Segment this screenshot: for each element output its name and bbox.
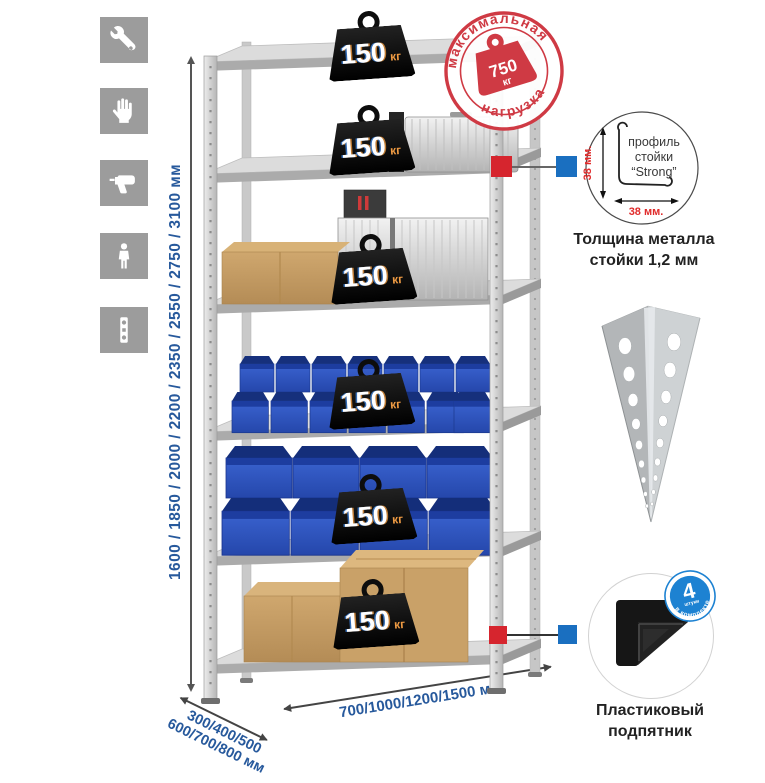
- foot-caption: Пластиковый подпятник: [568, 701, 732, 743]
- drill-tile: [100, 160, 148, 206]
- profile-dim-vertical: 38 мм.: [582, 146, 594, 181]
- post-profile-detail: 38 мм. 38 мм. профиль стойки “Strong”: [576, 100, 711, 235]
- connector-line-bottom: [504, 634, 560, 636]
- marker-red-bottom: [489, 626, 507, 644]
- profile-caption: Толщина металла стойки 1,2 мм: [558, 230, 730, 272]
- angle-post-image: [592, 298, 710, 530]
- level-tile: [100, 307, 148, 353]
- shelf-load-weight-4: 150кг: [325, 350, 416, 430]
- marker-blue-bottom: [558, 625, 577, 644]
- shelf-load-weight-2: 150кг: [325, 96, 416, 176]
- max-load-stamp: максимальная нагрузка 750 кг: [441, 8, 567, 134]
- gloves-icon: [109, 96, 139, 126]
- shelf-load-weight-5: 150кг: [327, 465, 418, 545]
- gloves-tile: [100, 88, 148, 134]
- profile-label-2: стойки: [635, 150, 673, 164]
- person-icon: [109, 241, 139, 271]
- profile-dim-horizontal: 38 мм.: [629, 206, 664, 218]
- drill-icon: [109, 168, 139, 198]
- shelf-load-weight-6: 150кг: [329, 570, 420, 650]
- assembly-tools-tile: [100, 17, 148, 63]
- spirit-level-icon: [109, 315, 139, 345]
- profile-label-3: “Strong”: [631, 165, 676, 179]
- connector-line-top: [508, 166, 558, 168]
- included-count-badge: 4 штуки в комплекте: [663, 569, 717, 623]
- person-tile: [100, 233, 148, 279]
- profile-label-1: профиль: [628, 135, 680, 149]
- height-dimension-label: 1600 / 1850 / 2000 / 2200 / 2350 / 2550 …: [167, 72, 187, 672]
- marker-blue-top: [556, 156, 577, 177]
- shelf-load-weight-3: 150кг: [327, 225, 418, 305]
- marker-red-top: [491, 156, 512, 177]
- wrench-icon: [109, 25, 139, 55]
- shelf-load-weight-1: 150кг: [325, 2, 416, 82]
